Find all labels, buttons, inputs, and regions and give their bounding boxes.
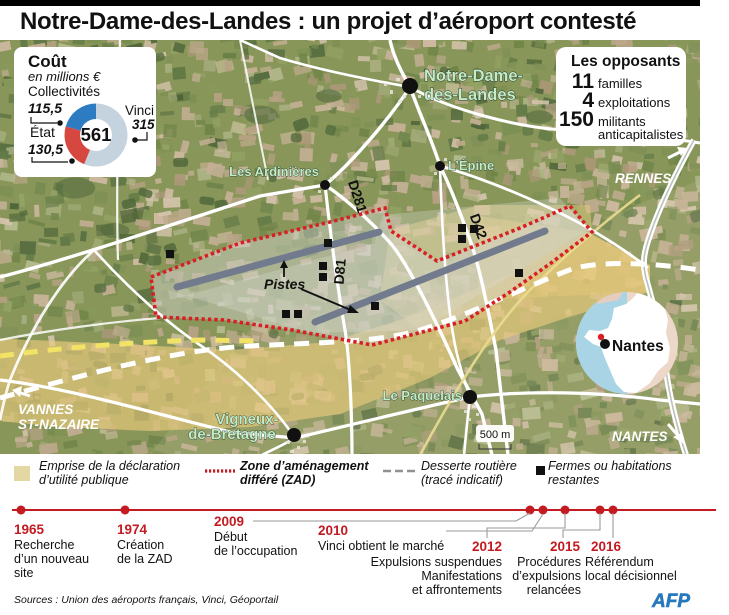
svg-text:local décisionnel: local décisionnel [585, 569, 677, 583]
svg-text:Recherche: Recherche [14, 538, 74, 552]
svg-text:Référendum: Référendum [585, 555, 654, 569]
svg-text:des-Landes: des-Landes [424, 86, 516, 104]
svg-text:Les Ardinières: Les Ardinières [229, 164, 319, 179]
svg-text:Début: Début [214, 530, 248, 544]
svg-text:RENNES: RENNES [615, 171, 671, 186]
svg-text:Manifestations: Manifestations [421, 569, 502, 583]
svg-text:2015: 2015 [550, 539, 581, 554]
svg-text:2016: 2016 [591, 539, 622, 554]
svg-text:de-Bretagne: de-Bretagne [188, 426, 276, 443]
svg-text:2009: 2009 [214, 514, 244, 529]
svg-text:d’un nouveau: d’un nouveau [14, 552, 89, 566]
svg-text:site: site [14, 566, 34, 580]
svg-text:Création: Création [117, 538, 164, 552]
svg-text:Expulsions suspendues: Expulsions suspendues [371, 555, 502, 569]
svg-text:NANTES: NANTES [612, 429, 668, 444]
svg-text:ST-NAZAIRE: ST-NAZAIRE [18, 417, 100, 432]
svg-text:Nantes: Nantes [612, 338, 664, 355]
svg-text:Le Paquelais: Le Paquelais [383, 388, 462, 403]
svg-text:VANNES: VANNES [18, 402, 73, 417]
svg-text:de la ZAD: de la ZAD [117, 552, 173, 566]
svg-text:Pistes: Pistes [264, 276, 305, 292]
svg-text:Procédures: Procédures [517, 555, 581, 569]
svg-text:500 m: 500 m [480, 429, 511, 441]
svg-text:Vinci obtient le marché: Vinci obtient le marché [318, 539, 444, 553]
svg-text:D81: D81 [331, 258, 349, 285]
svg-text:2010: 2010 [318, 523, 348, 538]
svg-text:de l’occupation: de l’occupation [214, 544, 297, 558]
svg-text:et affrontements: et affrontements [412, 583, 502, 597]
svg-text:1974: 1974 [117, 522, 148, 537]
svg-text:1965: 1965 [14, 522, 45, 537]
svg-text:d’expulsions: d’expulsions [512, 569, 581, 583]
svg-text:2012: 2012 [472, 539, 502, 554]
svg-text:L’Épine: L’Épine [448, 158, 494, 173]
svg-text:Notre-Dame-: Notre-Dame- [424, 67, 523, 85]
svg-text:relancées: relancées [527, 583, 581, 597]
